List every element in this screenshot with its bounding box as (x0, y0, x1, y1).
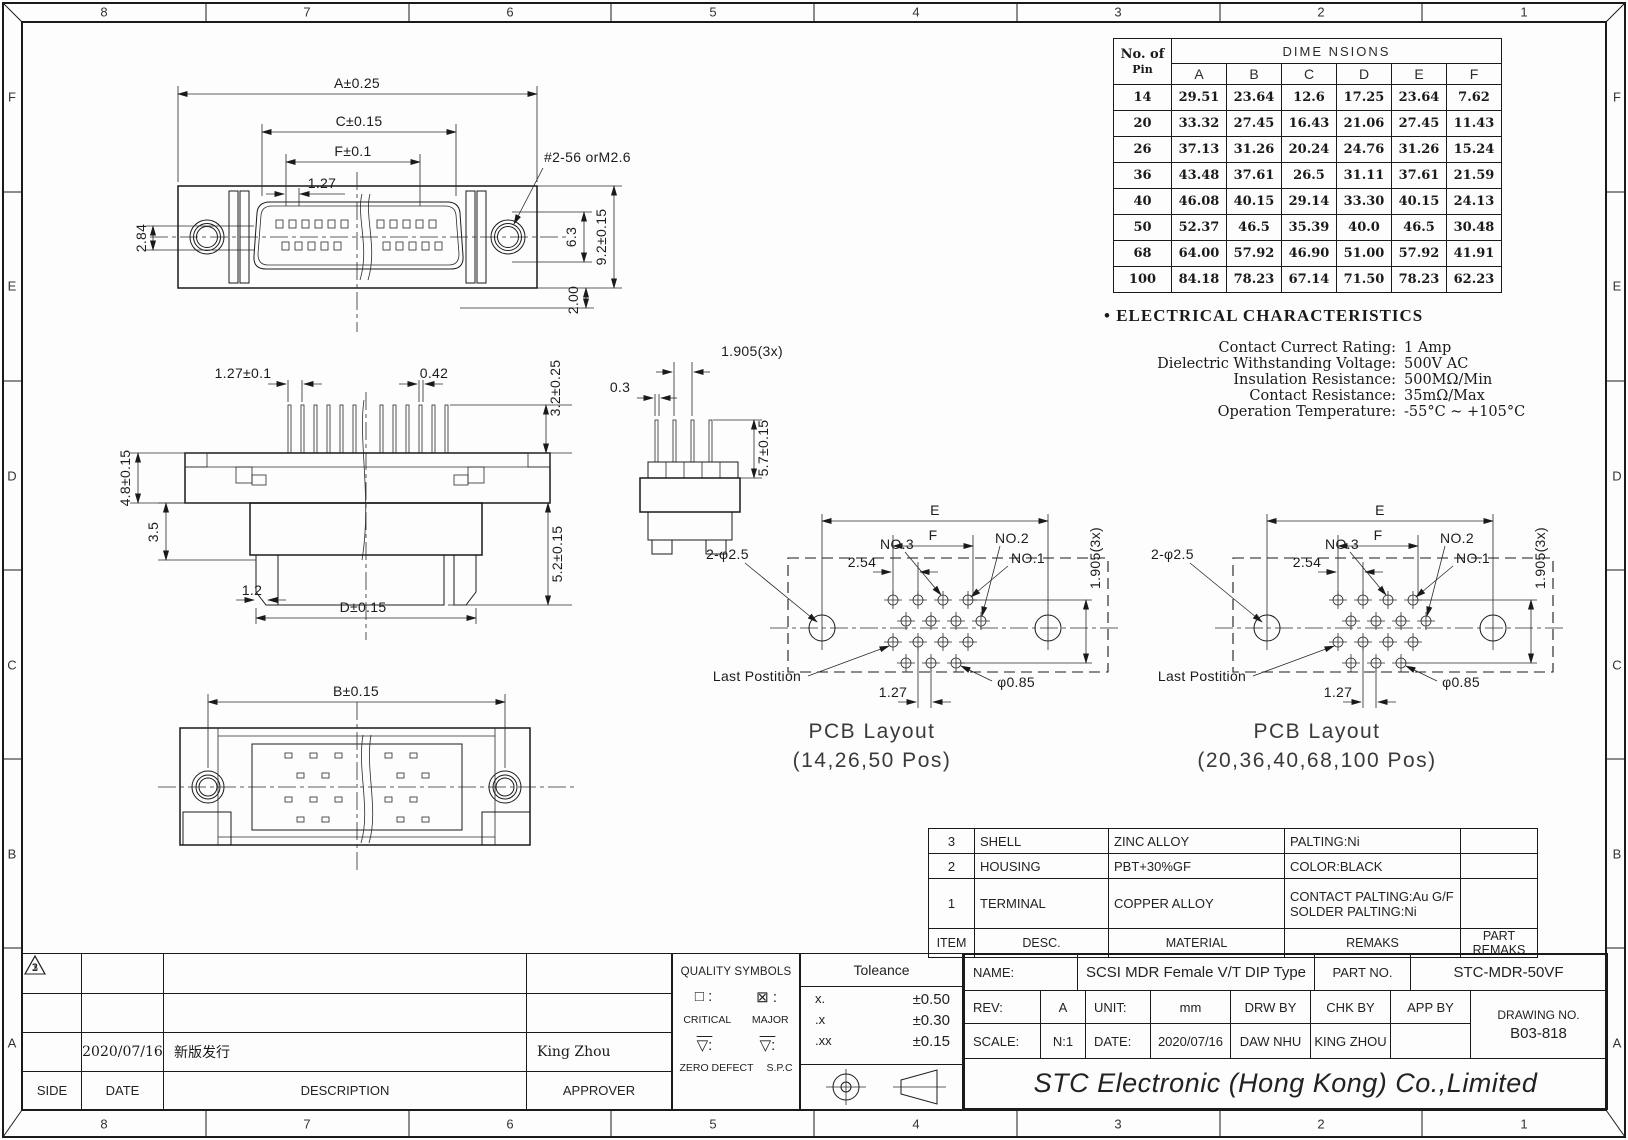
zone-col: 6 (506, 5, 513, 20)
zone-col: 4 (912, 1117, 919, 1132)
zone-col: 8 (100, 5, 107, 20)
major-label: MAJOR (752, 1014, 789, 1026)
dim-label: E (930, 502, 940, 518)
hole-callout: 2-φ2.5 (706, 546, 749, 562)
front-contacts (276, 220, 442, 250)
electrical-item: Insulation Resistance:500MΩ/Min (1100, 372, 1560, 388)
electrical-item: Operation Temperature:-55°C ~ +105°C (1100, 404, 1560, 420)
electrical-item: Contact Resistance:35mΩ/Max (1100, 388, 1560, 404)
side-view-labels: 0.3 1.905(3x) 5.7±0.15 (610, 343, 783, 476)
zone-row: D (7, 469, 16, 484)
electrical-title: • ELECTRICAL CHARACTERISTICS (1104, 306, 1560, 326)
zone-row: A (1613, 1036, 1622, 1051)
table-row: 1TERMINALCOPPER ALLOYCONTACT PALTING:Au … (929, 879, 1538, 929)
approver-header: APPROVER (526, 1071, 671, 1109)
zone-row: B (1613, 847, 1622, 862)
rev-approver: King Zhou (526, 1032, 671, 1071)
electrical-characteristics: • ELECTRICAL CHARACTERISTICS Contact Cur… (1100, 306, 1560, 420)
dimensions-table: No. ofPin DIME NSIONS ABCDEF 1429.5123.6… (1113, 38, 1502, 293)
pin-no3-label: NO.3 (1325, 536, 1359, 552)
screw-spec-label: #2-56 orM2.6 (544, 149, 631, 165)
revision-table: 3 2 1 2020/07/16 新版发行 King Zhou SIDE DAT… (22, 953, 672, 1110)
table-row: 3643.4837.6126.531.1137.6121.59 (1114, 163, 1502, 189)
dim-label: B±0.15 (333, 683, 379, 699)
part-no-label: PART NO. (1314, 955, 1410, 990)
table-row: 3SHELLZINC ALLOYPALTING:Ni (929, 829, 1538, 854)
rev-value: A (1040, 990, 1085, 1023)
section-pins (288, 405, 448, 453)
dim-label: 6.3 (563, 227, 579, 247)
dim-label: φ0.85 (1442, 674, 1480, 690)
dim-label: A±0.25 (334, 75, 380, 91)
drawing-no-value: B03-818 (1510, 1025, 1567, 1042)
electrical-item: Dielectric Withstanding Voltage:500V AC (1100, 356, 1560, 372)
dim-label: 0.42 (420, 365, 448, 381)
last-position-label: Last Postition (1158, 668, 1246, 684)
rev-description: 新版发行 (163, 1032, 526, 1071)
dim-label: 1.905(3x) (1532, 527, 1548, 589)
pin-no1-label: NO.1 (1011, 550, 1045, 566)
scale-value: N:1 (1040, 1023, 1085, 1058)
title-block: NAME: SCSI MDR Female V/T DIP Type PART … (963, 953, 1608, 1110)
spc-label: S.P.C (766, 1062, 792, 1074)
materials-table: 3SHELLZINC ALLOYPALTING:Ni 2HOUSINGPBT+3… (928, 828, 1538, 958)
table-row: 6864.0057.9246.9051.0057.9241.91 (1114, 241, 1502, 267)
zone-col: 4 (912, 5, 919, 20)
table-row: 2033.3227.4516.4321.0627.4511.43 (1114, 111, 1502, 137)
rev-triangle: 2 (23, 993, 81, 1032)
zone-row: C (1612, 658, 1621, 673)
quality-title: QUALITY SYMBOLS (681, 966, 792, 978)
app-by-value (1390, 1023, 1470, 1058)
zone-row: F (1613, 90, 1621, 105)
tolerance-block: Toleance x.±0.50 .x±0.30 .xx±0.15 (800, 953, 963, 1110)
dim-label: 3.2±0.25 (547, 360, 563, 417)
pin-no2-label: NO.2 (1440, 530, 1474, 546)
table-row: 2HOUSINGPBT+30%GFCOLOR:BLACK (929, 854, 1538, 879)
dim-label: 2.84 (133, 224, 149, 252)
pcb-layout-art (745, 514, 1122, 708)
dim-label: 0.3 (610, 379, 630, 395)
table-row: 10084.1878.2367.1471.5078.2362.23 (1114, 267, 1502, 293)
zone-col: 2 (1317, 1117, 1324, 1132)
section-view-labels: 1.27±0.1 0.42 3.2±0.25 4.8±0.15 3.5 1.2 … (117, 360, 565, 615)
third-angle-projection-icon (801, 1065, 964, 1109)
pin-no1-label: NO.1 (1456, 550, 1490, 566)
pcb-caption: PCB Layout (808, 720, 935, 743)
rev-date: 2020/07/16 (81, 1032, 163, 1071)
dim-label: E (1375, 502, 1385, 518)
chk-by-label: CHK BY (1310, 990, 1390, 1023)
zone-col: 8 (100, 1117, 107, 1132)
dim-label: 2.54 (848, 554, 876, 570)
dim-label: 3.5 (145, 522, 161, 542)
zone-row: A (8, 1036, 17, 1051)
side-view (637, 362, 762, 554)
pin-header: No. ofPin (1114, 39, 1172, 85)
dim-label: 2.54 (1293, 554, 1321, 570)
dim-label: F (929, 527, 938, 543)
pcb-caption-sub: (20,36,40,68,100 Pos) (1197, 749, 1436, 772)
description-header: DESCRIPTION (163, 1071, 526, 1109)
table-row: 4046.0840.1529.1433.3040.1524.13 (1114, 189, 1502, 215)
dim-label: 5.2±0.15 (549, 526, 565, 583)
hole-callout: 2-φ2.5 (1151, 546, 1194, 562)
last-position-label: Last Postition (713, 668, 801, 684)
pcb-caption-sub: (14,26,50 Pos) (793, 749, 952, 772)
zero-defect-label: ZERO DEFECT (679, 1062, 753, 1074)
drw-by-label: DRW BY (1230, 990, 1310, 1023)
dim-label: 1.27 (879, 684, 907, 700)
zone-row: B (8, 847, 17, 862)
pin-no2-label: NO.2 (995, 530, 1029, 546)
dim-label: φ0.85 (997, 674, 1035, 690)
dim-label: 9.2±0.15 (593, 209, 609, 266)
front-view (146, 86, 622, 332)
date-label: DATE: (1085, 1023, 1150, 1058)
rev-label: REV: (965, 990, 1040, 1023)
table-row: 5052.3746.535.3940.046.530.48 (1114, 215, 1502, 241)
unit-label: UNIT: (1085, 990, 1150, 1023)
chk-by-value: KING ZHOU (1310, 1023, 1390, 1058)
app-by-label: APP BY (1390, 990, 1470, 1023)
tolerance-title: Toleance (801, 954, 962, 987)
dimensions-header: DIME NSIONS (1172, 39, 1502, 64)
dim-label: 1.27±0.1 (215, 365, 272, 381)
table-row: 1429.5123.6412.617.2523.647.62 (1114, 85, 1502, 111)
zone-col: 3 (1114, 1117, 1121, 1132)
company-name: STC Electronic (Hong Kong) Co.,Limited (965, 1058, 1606, 1108)
dim-label: D±0.15 (340, 599, 387, 615)
dim-label: 4.8±0.15 (117, 450, 133, 507)
zone-col: 7 (303, 5, 310, 20)
zone-row: F (8, 90, 16, 105)
table-row: 2637.1331.2620.2424.7631.2615.24 (1114, 137, 1502, 163)
dim-label: 1.27 (1324, 684, 1352, 700)
dim-label: 1.27 (308, 175, 336, 191)
name-label: NAME: (965, 955, 1077, 990)
zone-col: 1 (1520, 1117, 1527, 1132)
zone-col: 1 (1520, 5, 1527, 20)
zone-col: 5 (709, 1117, 716, 1132)
dim-label: F (1374, 527, 1383, 543)
pcb-caption: PCB Layout (1253, 720, 1380, 743)
pcb-left-labels: E F NO.3 NO.2 NO.1 2-φ2.5 2.54 1.905(3x)… (706, 502, 1103, 772)
part-name: SCSI MDR Female V/T DIP Type (1077, 955, 1314, 990)
date-value: 2020/07/16 (1150, 1023, 1230, 1058)
pin-no3-label: NO.3 (880, 536, 914, 552)
major-symbol-icon: ⊠ : (756, 988, 777, 1006)
quality-symbols: QUALITY SYMBOLS □ :⊠ : CRITICALMAJOR ▽:▽… (672, 953, 800, 1110)
pcb-right-labels: E F NO.3 NO.2 NO.1 2-φ2.5 2.54 1.905(3x)… (1151, 502, 1548, 772)
side-header: SIDE (23, 1071, 81, 1109)
critical-symbol-icon: □ : (695, 988, 712, 1006)
front-view-labels: A±0.25 C±0.15 F±0.1 1.27 #2-56 orM2.6 2.… (133, 75, 631, 314)
rev-triangle: 1 (23, 1032, 81, 1071)
zone-col: 5 (709, 5, 716, 20)
dim-label: 1.2 (242, 582, 262, 598)
dim-label: 1.905(3x) (1087, 527, 1103, 589)
electrical-item: Contact Currect Rating:1 Amp (1100, 340, 1560, 356)
zone-row: E (8, 279, 17, 294)
bottom-view (158, 694, 574, 874)
part-no-value: STC-MDR-50VF (1410, 955, 1606, 990)
zone-col: 7 (303, 1117, 310, 1132)
drawing-no-cell: DRAWING NO. B03-818 (1470, 990, 1606, 1058)
side-pins (655, 420, 712, 462)
dim-label: 1.905(3x) (721, 343, 783, 359)
zone-col: 2 (1317, 5, 1324, 20)
zone-row: E (1613, 279, 1622, 294)
drawing-no-label: DRAWING NO. (1497, 1008, 1579, 1022)
projection-symbol (801, 1064, 964, 1109)
drawing-sheet: A±0.25 C±0.15 F±0.1 1.27 #2-56 orM2.6 2.… (0, 0, 1628, 1140)
unit-value: mm (1150, 990, 1230, 1023)
date-header: DATE (81, 1071, 163, 1109)
pcb-holes (884, 591, 990, 672)
critical-label: CRITICAL (683, 1014, 731, 1026)
zone-row: C (7, 658, 16, 673)
spc-symbol-icon: ▽: (760, 1036, 776, 1054)
dim-label: 2.00 (565, 286, 581, 314)
zero-defect-symbol-icon: ▽: (697, 1036, 713, 1054)
dim-label: F±0.1 (334, 143, 371, 159)
dim-label: C±0.15 (336, 113, 383, 129)
scale-label: SCALE: (965, 1023, 1040, 1058)
drw-by-value: DAW NHU (1230, 1023, 1310, 1058)
zone-col: 3 (1114, 5, 1121, 20)
zone-col: 6 (506, 1117, 513, 1132)
dim-label: 5.7±0.15 (755, 420, 771, 477)
zone-row: D (1612, 469, 1621, 484)
